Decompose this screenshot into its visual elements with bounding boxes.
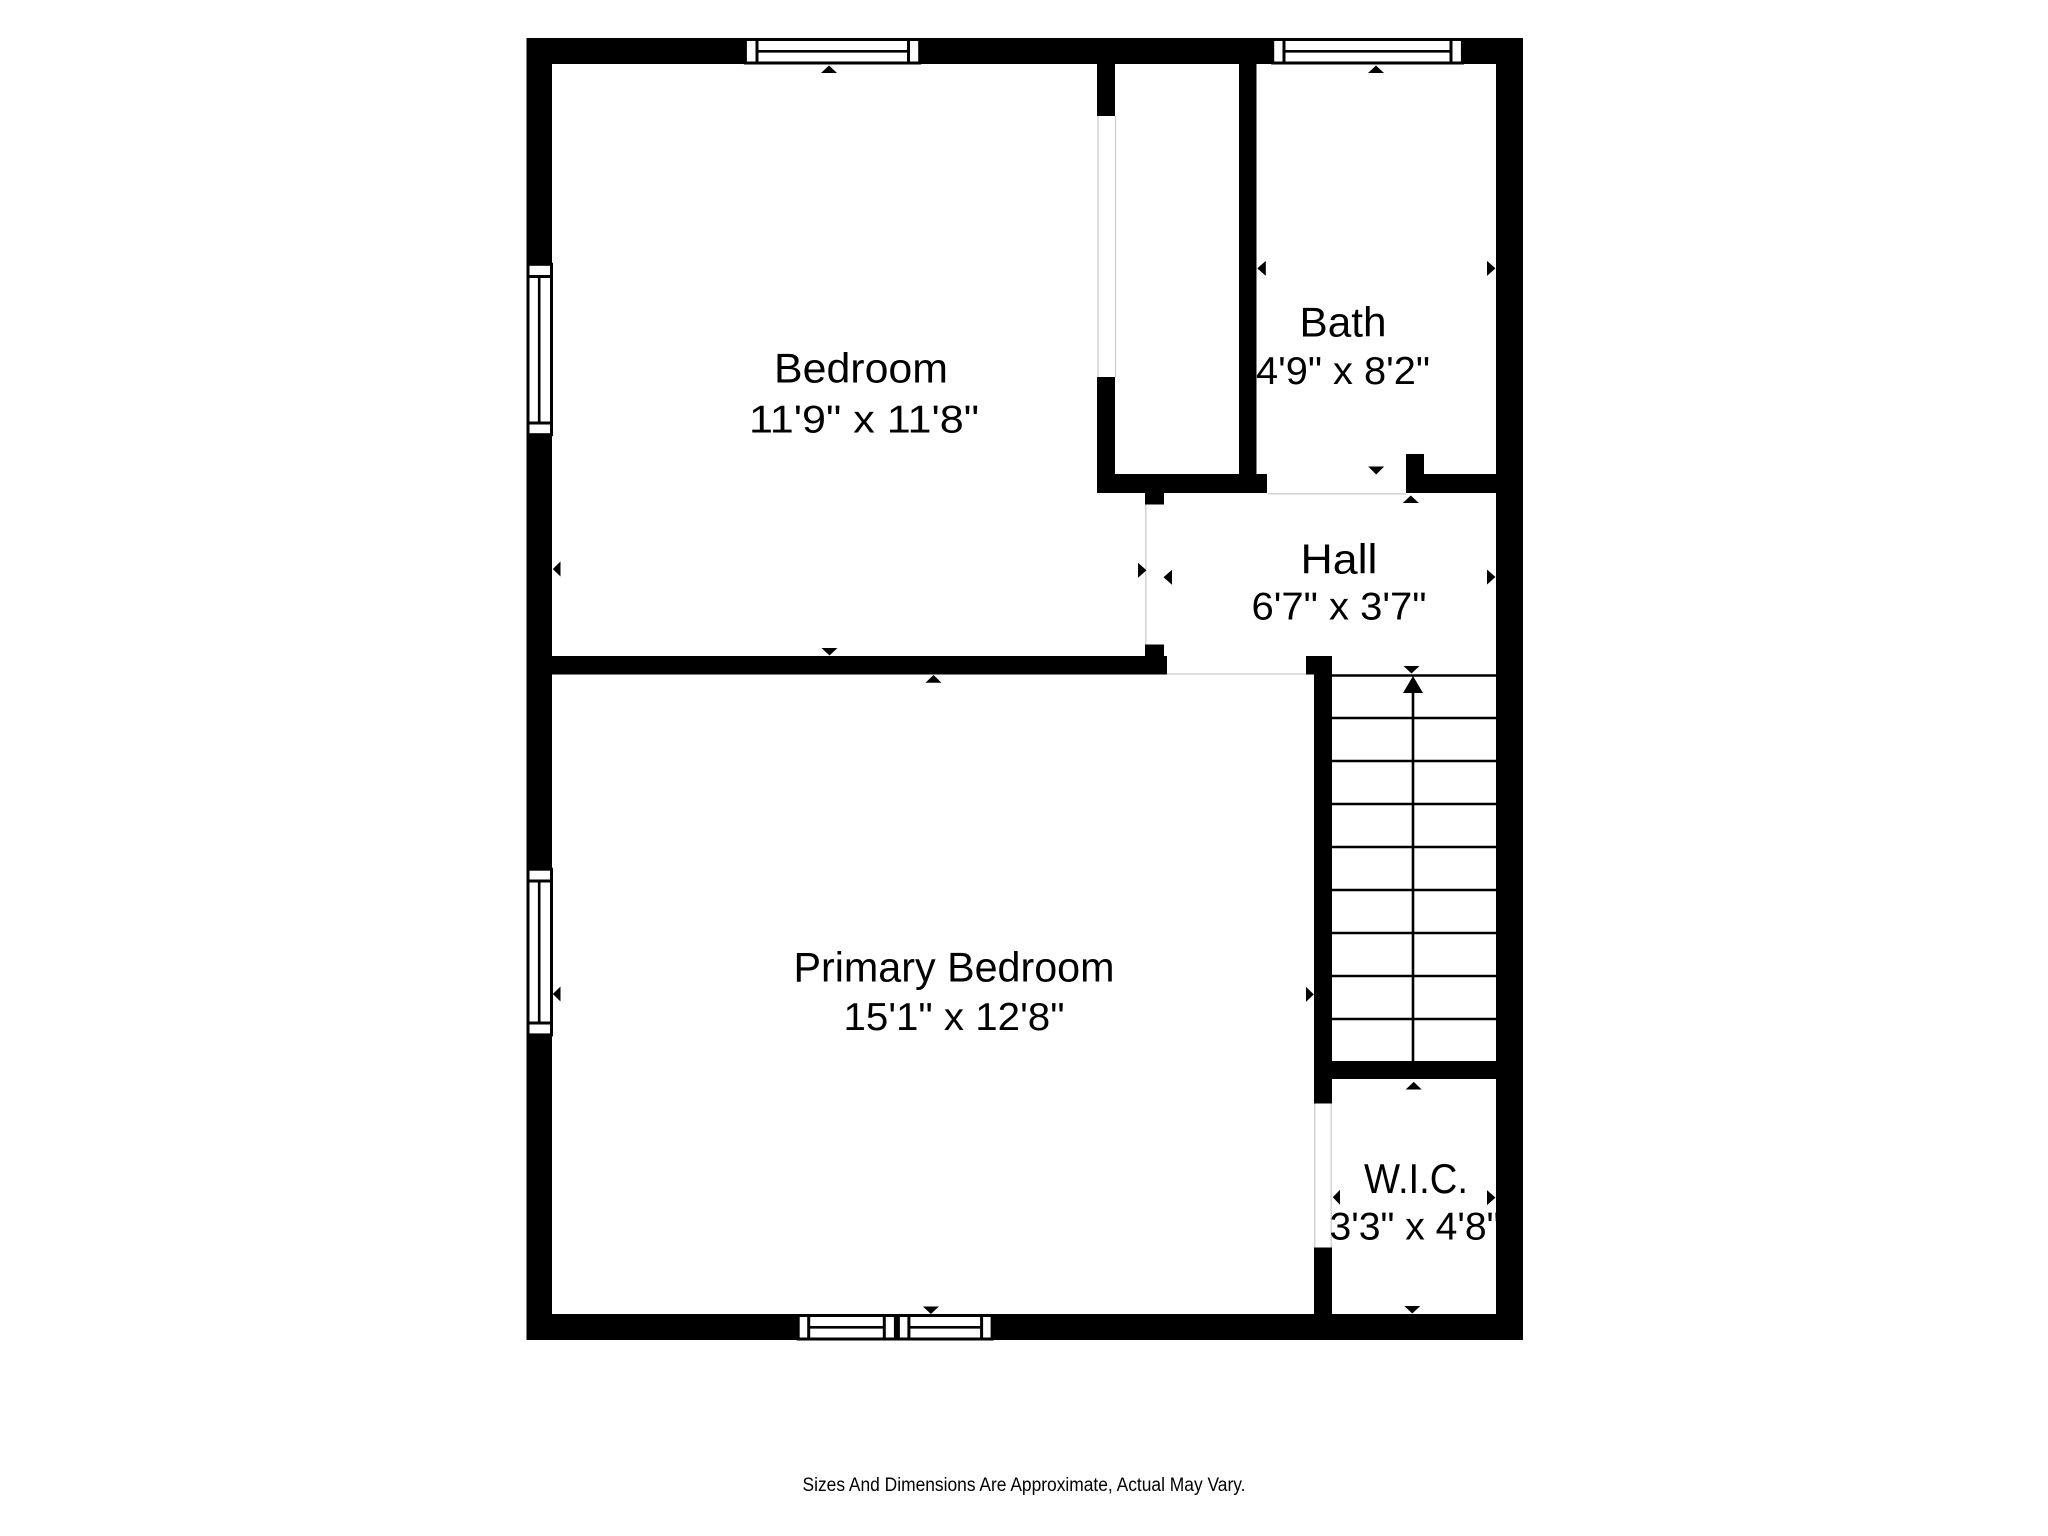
svg-text:W.I.C.: W.I.C.: [1364, 1155, 1468, 1202]
svg-text:Bedroom: Bedroom: [774, 345, 948, 392]
svg-text:15'1" x 12'8": 15'1" x 12'8": [844, 996, 1065, 1039]
svg-text:11'9" x 11'8": 11'9" x 11'8": [749, 399, 979, 442]
svg-text:6'7" x 3'7": 6'7" x 3'7": [1252, 586, 1427, 629]
svg-text:4'9" x 8'2": 4'9" x 8'2": [1256, 350, 1430, 393]
svg-text:Hall: Hall: [1301, 536, 1378, 583]
svg-text:Sizes And Dimensions Are Appro: Sizes And Dimensions Are Approximate, Ac…: [803, 1475, 1246, 1496]
svg-text:Bath: Bath: [1300, 299, 1387, 346]
svg-text:3'3" x 4'8": 3'3" x 4'8": [1330, 1206, 1501, 1249]
svg-text:Primary Bedroom: Primary Bedroom: [794, 944, 1115, 991]
